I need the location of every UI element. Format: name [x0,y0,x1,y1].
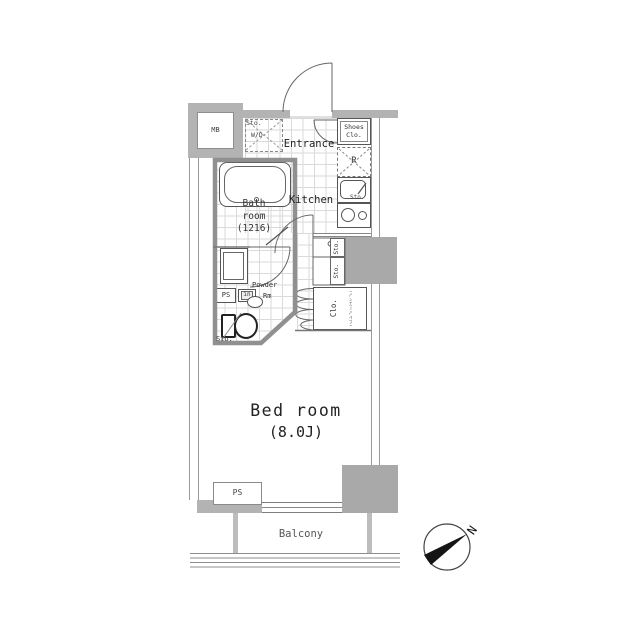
bedroom-size: (8.0J) [221,423,371,441]
stove-burner-left [341,208,355,222]
balcony-divider-left [233,513,238,554]
bathroom-label: Bath room (1216) [226,198,282,236]
hallway-floor [297,233,313,330]
meter-box: MB [197,112,234,149]
vanity-basin [223,252,244,280]
storage-lower-label: Sto. [334,264,341,278]
pipe-space-mid: PS [216,288,236,303]
compass-icon [420,520,495,580]
storage-lower: Sto. [330,257,345,285]
storage-upper-label: Sto. [334,240,341,254]
entrance-door-icon [283,63,332,117]
pillar-upper-right [345,237,397,284]
closet-label-box: Clo. [327,289,341,328]
powder-basin [247,296,263,308]
bedroom-window [262,502,342,513]
powder-room-label-1: Powder [252,282,277,290]
bathroom-label-2: room [226,211,282,224]
bedroom-label: Bed room (8.0J) [221,401,371,441]
shoes-closet-label-2: Clo. [346,132,362,139]
kitchen-label: Kitchen [281,195,341,207]
stove-burner-right [358,211,367,220]
closet-label: Clo. [330,299,338,317]
balcony-railing [190,553,400,568]
laundry-label-2: W/D [251,132,263,139]
bedroom-name: Bed room [221,401,371,420]
powder-room-label-2: Rm [263,293,271,301]
closet-note: (ハンガーパイプ) [343,290,352,328]
right-wall-upper [371,118,380,237]
floorplan: MB Shoes Clo. R Sto. Sto. Sto. Clo. (ハンガ… [0,0,640,640]
pipe-space-bottom: PS [213,482,262,505]
pipe-space-bottom-label: PS [233,489,243,498]
shoes-closet: Shoes Clo. [337,118,371,145]
toilet-storage-label: Sto. [216,336,233,344]
refrigerator-space: R [337,147,371,177]
bathroom-label-1: Bath [226,198,282,211]
laundry-label-1: Sto. [246,120,262,127]
left-wall [189,158,199,500]
bathroom-label-3: (1216) [226,223,282,236]
balcony-label: Balcony [269,529,333,541]
entrance-label: Entrance [278,139,340,151]
top-wall-left [243,110,290,118]
meter-box-label: MB [211,127,219,135]
right-wall-lower [371,284,380,465]
pillar-lower-right [342,465,398,513]
toilet-bowl [234,313,258,339]
balcony-divider-right [367,513,372,554]
pipe-space-mid-label: PS [222,292,230,300]
kitchen-storage-label: Sto. [350,195,364,202]
storage-upper: Sto. [330,238,345,257]
refrigerator-label: R [351,157,356,167]
top-wall-right [332,110,398,118]
